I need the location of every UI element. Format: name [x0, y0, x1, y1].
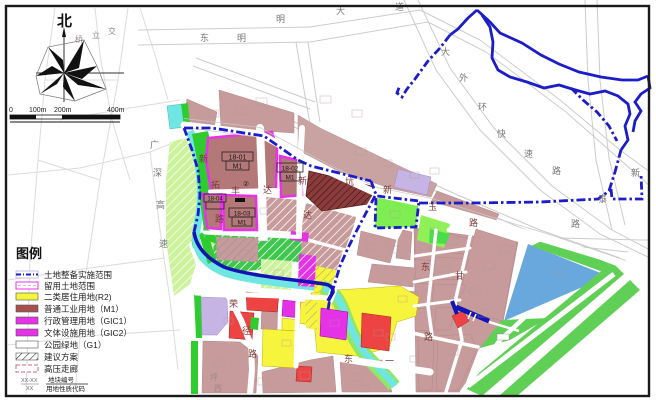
- svg-text:18-01: 18-01: [229, 155, 247, 162]
- svg-text:拓: 拓: [211, 179, 220, 190]
- svg-text:东: 东: [421, 261, 430, 272]
- svg-text:荣: 荣: [229, 298, 238, 309]
- svg-text:18-02: 18-02: [282, 166, 299, 173]
- svg-text:18-04: 18-04: [207, 197, 223, 203]
- svg-text:路: 路: [248, 348, 257, 359]
- svg-text:②: ②: [243, 180, 249, 188]
- svg-text:泰: 泰: [598, 193, 607, 204]
- svg-text:高压走廊: 高压走廊: [44, 364, 79, 374]
- svg-text:坑: 坑: [345, 176, 354, 187]
- svg-text:土地整备实施范围: 土地整备实施范围: [44, 270, 112, 280]
- svg-text:用地性质代码: 用地性质代码: [46, 384, 86, 393]
- svg-text:明: 明: [237, 33, 246, 43]
- svg-text:18-03: 18-03: [234, 211, 251, 218]
- svg-text:新: 新: [298, 175, 307, 186]
- svg-text:达: 达: [263, 184, 272, 195]
- svg-text:明: 明: [276, 14, 285, 24]
- svg-text:深: 深: [153, 168, 162, 178]
- svg-text:坪: 坪: [210, 373, 218, 382]
- svg-text:高: 高: [156, 199, 165, 210]
- svg-text:XX-XX: XX-XX: [21, 378, 38, 384]
- svg-text:环: 环: [478, 102, 487, 112]
- svg-text:M1: M1: [285, 175, 294, 182]
- svg-text:400m: 400m: [107, 107, 125, 114]
- svg-text:大: 大: [441, 46, 450, 57]
- svg-text:路: 路: [571, 218, 580, 229]
- svg-text:甘: 甘: [455, 270, 464, 281]
- svg-text:一: 一: [385, 356, 394, 366]
- svg-text:立: 立: [92, 30, 100, 40]
- svg-text:东: 东: [344, 353, 353, 364]
- svg-text:M1: M1: [233, 164, 243, 171]
- svg-text:文体设施用地（GIC2）: 文体设施用地（GIC2）: [44, 328, 132, 338]
- svg-text:留用土地范围: 留用土地范围: [44, 281, 95, 291]
- svg-text:丰: 丰: [231, 185, 240, 196]
- svg-text:路: 路: [469, 217, 478, 228]
- svg-text:径: 径: [242, 325, 251, 336]
- svg-text:新: 新: [631, 167, 640, 178]
- svg-text:外: 外: [459, 72, 468, 83]
- svg-text:北: 北: [57, 13, 72, 30]
- svg-text:图例: 图例: [16, 246, 42, 261]
- svg-text:快: 快: [497, 128, 506, 139]
- svg-text:行政管理用地（GIC1）: 行政管理用地（GIC1）: [44, 316, 132, 326]
- svg-text:M1: M1: [237, 220, 246, 227]
- svg-text:XX: XX: [26, 386, 34, 392]
- svg-text:0: 0: [9, 107, 13, 114]
- svg-text:交: 交: [108, 26, 116, 36]
- svg-text:地块编号: 地块编号: [48, 375, 75, 384]
- svg-text:普通工业用地（M1）: 普通工业用地（M1）: [44, 304, 124, 314]
- svg-text:东: 东: [200, 32, 209, 43]
- svg-text:玉: 玉: [428, 202, 437, 212]
- svg-text:100m: 100m: [29, 107, 47, 114]
- svg-text:路: 路: [424, 331, 433, 342]
- svg-text:达: 达: [303, 209, 312, 220]
- svg-text:广: 广: [150, 139, 159, 150]
- svg-text:公园绿地（G1）: 公园绿地（G1）: [44, 340, 106, 350]
- svg-text:200m: 200m: [54, 107, 72, 114]
- svg-text:二类居住用地(R2): 二类居住用地(R2): [44, 292, 112, 302]
- svg-text:桥: 桥: [75, 34, 83, 44]
- svg-text:路: 路: [552, 165, 561, 176]
- svg-text:新: 新: [199, 153, 208, 164]
- svg-text:西: 西: [214, 384, 222, 393]
- svg-text:新: 新: [383, 184, 392, 195]
- svg-text:建议方案: 建议方案: [44, 352, 79, 362]
- svg-text:速: 速: [159, 239, 168, 249]
- svg-text:路: 路: [215, 213, 224, 224]
- svg-text:速: 速: [524, 149, 533, 159]
